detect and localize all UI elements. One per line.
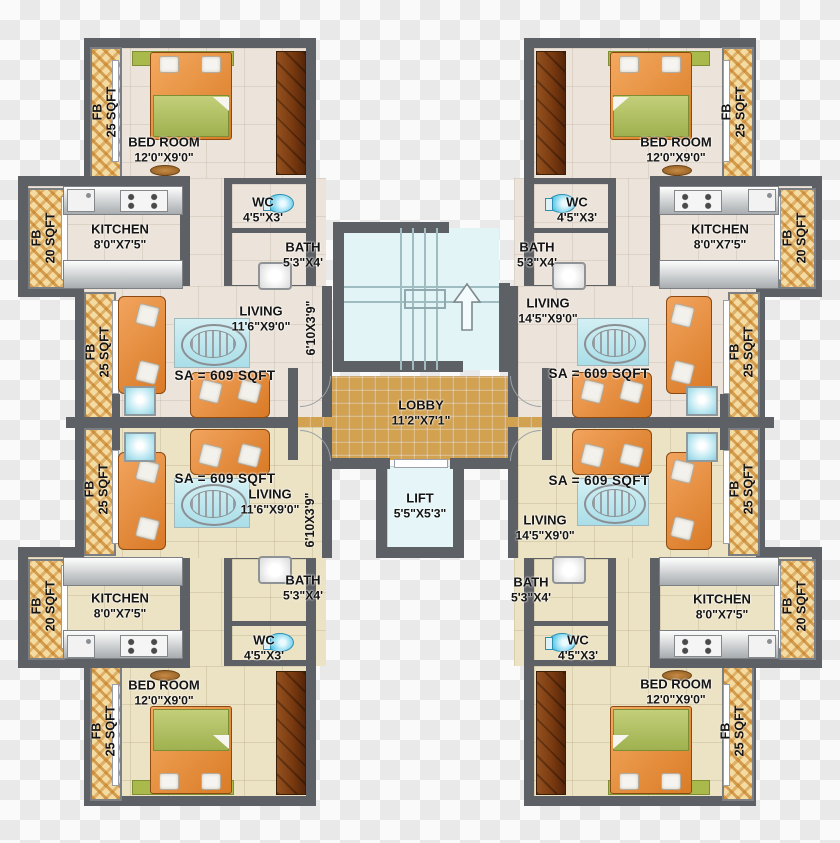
living-label: LIVING11'6"X9'0" — [232, 304, 291, 335]
wc-label: WC4'5"X3' — [557, 195, 597, 226]
stairs-wall-left — [333, 222, 344, 372]
fb-bedroom-label: FB25 SQFT — [719, 706, 748, 757]
fb-bedroom-label: FB25 SQFT — [720, 87, 749, 138]
wc-bath-divider-top-left — [232, 228, 306, 233]
bath-label: BATH5'3"X4' — [283, 240, 323, 271]
double-bed — [610, 706, 692, 794]
saleable-area-label: SA = 609 SQFT — [174, 471, 275, 487]
stair-mid-landing — [404, 289, 446, 309]
wash-basin — [552, 556, 586, 584]
wc-bath-divider-bottom-right — [534, 621, 608, 626]
wc-bath-divider-top-right — [534, 228, 608, 233]
stairs-up-arrow-icon — [452, 282, 482, 332]
lift-label: LIFT5'5"X5'3" — [394, 491, 447, 522]
fb-living-label: FB25 SQFT — [84, 327, 113, 378]
sofa — [666, 296, 712, 394]
passage-label: 6'10X3'9" — [304, 301, 318, 356]
bath-label: BATH5'3"X4' — [517, 240, 557, 271]
fb-bedroom-label: FB25 SQFT — [90, 706, 119, 757]
kitchen-counter — [659, 557, 779, 586]
sofa — [118, 296, 166, 394]
wc-bath-divider-bottom-left — [232, 621, 306, 626]
stairs-wall-bottom — [333, 361, 463, 372]
fb-living-label: FB25 SQFT — [728, 327, 757, 378]
sofa — [666, 452, 712, 550]
loveseat-sofa — [572, 429, 652, 475]
kitchen-counter — [63, 557, 183, 586]
fb-kitchen-label: FB20 SQFT — [30, 213, 59, 264]
living-label: LIVING11'6"X9'0" — [241, 487, 300, 518]
side-table — [686, 432, 718, 462]
bath-label: BATH5'3"X4' — [511, 575, 551, 606]
side-table — [124, 432, 156, 462]
unit-divider-wall-right — [550, 417, 774, 428]
fb-kitchen-label: FB20 SQFT — [781, 581, 810, 632]
fb-living-label: FB25 SQFT — [83, 464, 112, 515]
bedroom-table — [662, 165, 692, 176]
bedroom-label: BED ROOM12'0"X9'0" — [640, 135, 712, 166]
passage-label: 6'10X3'9" — [303, 493, 317, 548]
kitchen-counter — [63, 630, 183, 659]
bedroom-label: BED ROOM12'0"X9'0" — [128, 678, 200, 709]
sofa — [118, 452, 166, 550]
wc-label: WC4'5"X3' — [243, 195, 283, 226]
kitchen-label: KITCHEN8'0"X7'5" — [91, 591, 149, 622]
kitchen-label: KITCHEN8'0"X7'5" — [691, 222, 749, 253]
center-table-rug — [577, 318, 649, 366]
double-bed — [150, 706, 232, 794]
fb-bedroom-label: FB25 SQFT — [91, 87, 120, 138]
saleable-area-label: SA = 609 SQFT — [548, 366, 649, 382]
bath-label: BATH5'3"X4' — [283, 573, 323, 604]
wardrobe — [276, 671, 306, 795]
kitchen-counter — [63, 260, 183, 289]
lobby-wall-left — [288, 368, 298, 460]
loveseat-sofa — [190, 429, 270, 475]
kitchen-counter — [659, 630, 779, 659]
living-label: LIVING14'5"X9'0" — [515, 513, 574, 544]
stairs-wall-right — [499, 283, 510, 372]
living-label: LIVING14'5"X9'0" — [518, 296, 577, 327]
lift-wall-bottom — [376, 547, 464, 558]
divider-stub-left — [112, 394, 120, 450]
wardrobe — [536, 51, 566, 175]
lift-wall-right — [453, 458, 464, 558]
saleable-area-label: SA = 609 SQFT — [548, 473, 649, 489]
unit-divider-wall-left — [66, 417, 290, 428]
bedroom-label: BED ROOM12'0"X9'0" — [128, 135, 200, 166]
fb-kitchen-label: FB20 SQFT — [781, 213, 810, 264]
side-table — [124, 386, 156, 416]
saleable-area-label: SA = 609 SQFT — [174, 368, 275, 384]
wc-label: WC4'5"X3' — [244, 633, 284, 664]
bedroom-table — [150, 165, 180, 176]
wc-label: WC4'5"X3' — [558, 633, 598, 664]
kitchen-counter — [659, 186, 779, 215]
kitchen-label: KITCHEN8'0"X7'5" — [693, 592, 751, 623]
divider-stub-right — [720, 394, 728, 450]
lift-door — [394, 459, 448, 468]
fb-kitchen-label: FB20 SQFT — [30, 581, 59, 632]
bedroom-label: BED ROOM12'0"X9'0" — [640, 677, 712, 708]
stairs-wall-top — [333, 222, 449, 233]
wardrobe — [276, 51, 306, 175]
side-table — [686, 386, 718, 416]
double-bed — [150, 52, 232, 140]
kitchen-counter — [659, 260, 779, 289]
fb-living-label: FB25 SQFT — [728, 464, 757, 515]
stair-tread — [400, 228, 402, 370]
double-bed — [610, 52, 692, 140]
wardrobe — [536, 671, 566, 795]
kitchen-label: KITCHEN8'0"X7'5" — [91, 222, 149, 253]
wash-basin — [552, 262, 586, 290]
lift-wall-left — [376, 458, 387, 558]
kitchen-counter — [63, 186, 183, 215]
floor-plan: BED ROOM12'0"X9'0" KITCHEN8'0"X7'5" WC4'… — [0, 0, 840, 843]
lobby-label: LOBBY11'2"X7'1" — [392, 398, 451, 429]
